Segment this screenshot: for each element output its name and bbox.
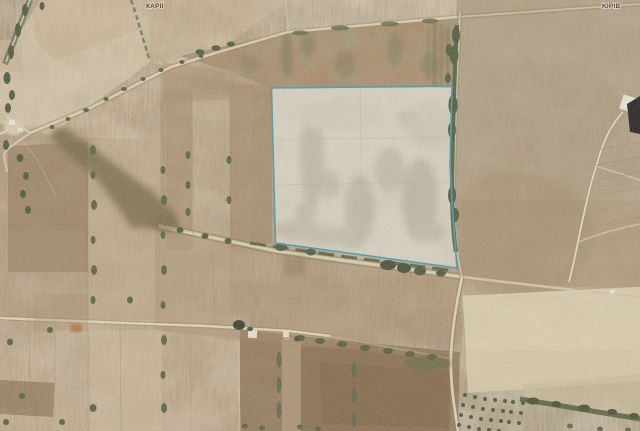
- svg-text:КАРІЇ: КАРІЇ: [146, 2, 164, 10]
- svg-text:ЮРІВ: ЮРІВ: [602, 3, 620, 10]
